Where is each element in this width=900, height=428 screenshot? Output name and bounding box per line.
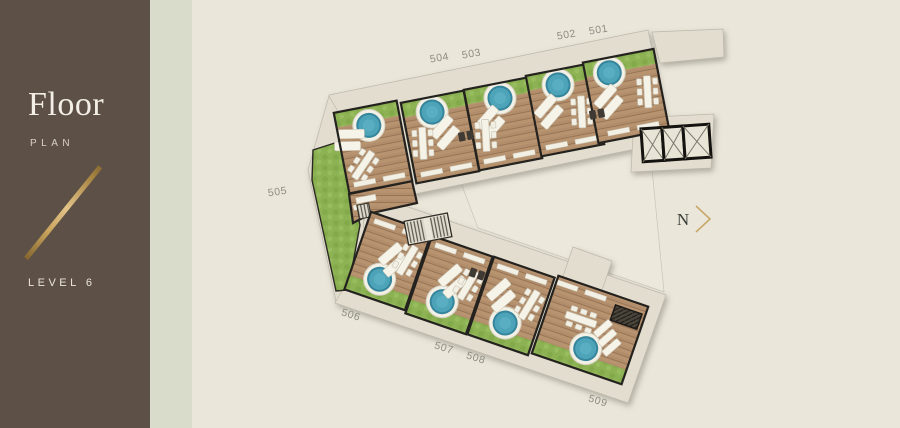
gold-divider-icon [24,165,102,260]
floor-plan-canvas: 501 502 503 504 505 506 507 508 509 N [190,0,900,428]
dining-table-icon [636,75,659,108]
sidebar: Floor PLAN LEVEL 6 [0,0,150,428]
north-label: N [677,210,689,229]
unit-label-504: 504 [429,50,450,65]
walkway-corridor [652,29,724,63]
unit-label-502: 502 [556,27,577,42]
north-indicator: N [677,206,710,232]
dining-table-icon [475,119,498,152]
unit-label-501: 501 [588,22,609,37]
floor-plan-page: Floor PLAN LEVEL 6 [0,0,900,428]
unit-label-505: 505 [267,185,288,200]
accent-strip [150,0,192,428]
page-title: Floor [28,86,104,124]
page-subtitle: PLAN [30,138,74,149]
level-label: LEVEL 6 [28,277,96,289]
unit-label-503: 503 [461,46,482,61]
dining-table-icon [412,127,435,160]
elevator-icon [641,124,711,162]
north-chevron-icon [696,206,710,232]
